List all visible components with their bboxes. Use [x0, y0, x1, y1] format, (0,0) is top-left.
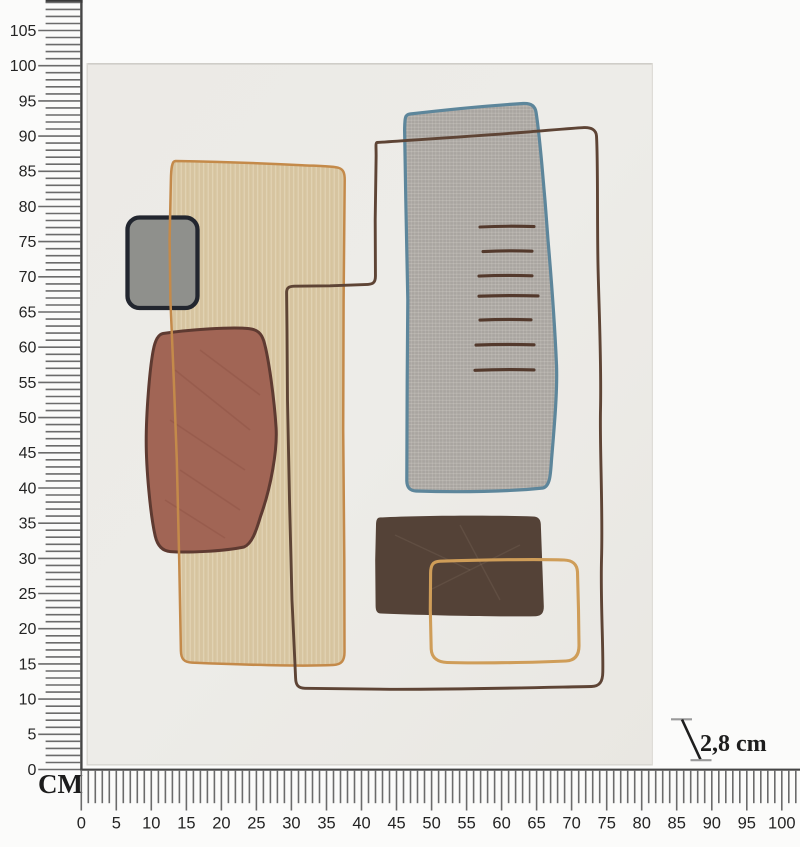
svg-text:25: 25	[247, 815, 265, 833]
svg-text:50: 50	[422, 815, 440, 833]
svg-text:80: 80	[633, 815, 651, 833]
svg-text:85: 85	[19, 164, 37, 181]
svg-text:5: 5	[112, 815, 121, 833]
svg-text:100: 100	[768, 815, 796, 833]
svg-text:0: 0	[27, 762, 36, 779]
svg-text:45: 45	[387, 815, 405, 833]
svg-text:85: 85	[668, 815, 686, 833]
svg-text:2,8 cm: 2,8 cm	[700, 731, 767, 757]
svg-text:95: 95	[738, 815, 756, 833]
svg-text:CM: CM	[38, 769, 83, 799]
svg-text:95: 95	[19, 93, 37, 110]
svg-text:15: 15	[177, 815, 195, 833]
svg-text:55: 55	[457, 815, 475, 833]
svg-text:35: 35	[317, 815, 335, 833]
svg-text:105: 105	[10, 23, 37, 40]
svg-text:20: 20	[212, 815, 230, 833]
svg-text:30: 30	[282, 815, 300, 833]
svg-text:30: 30	[19, 551, 37, 568]
svg-text:20: 20	[19, 621, 37, 638]
svg-text:35: 35	[19, 516, 37, 533]
svg-text:25: 25	[19, 586, 37, 603]
svg-text:80: 80	[19, 199, 37, 216]
svg-text:40: 40	[19, 480, 37, 497]
svg-text:65: 65	[527, 815, 545, 833]
svg-text:75: 75	[19, 234, 37, 251]
svg-text:75: 75	[598, 815, 616, 833]
svg-text:45: 45	[19, 445, 37, 462]
svg-text:5: 5	[27, 727, 36, 744]
svg-text:10: 10	[142, 815, 160, 833]
svg-text:0: 0	[77, 815, 86, 833]
svg-text:90: 90	[19, 129, 37, 146]
svg-text:15: 15	[19, 656, 37, 673]
svg-text:90: 90	[703, 815, 721, 833]
svg-text:10: 10	[19, 692, 37, 709]
svg-text:100: 100	[10, 58, 37, 75]
svg-text:60: 60	[492, 815, 510, 833]
svg-text:65: 65	[19, 304, 37, 321]
svg-text:40: 40	[352, 815, 370, 833]
svg-text:70: 70	[562, 815, 580, 833]
svg-text:70: 70	[19, 269, 37, 286]
svg-text:55: 55	[19, 375, 37, 392]
svg-text:60: 60	[19, 340, 37, 357]
svg-text:50: 50	[19, 410, 37, 427]
